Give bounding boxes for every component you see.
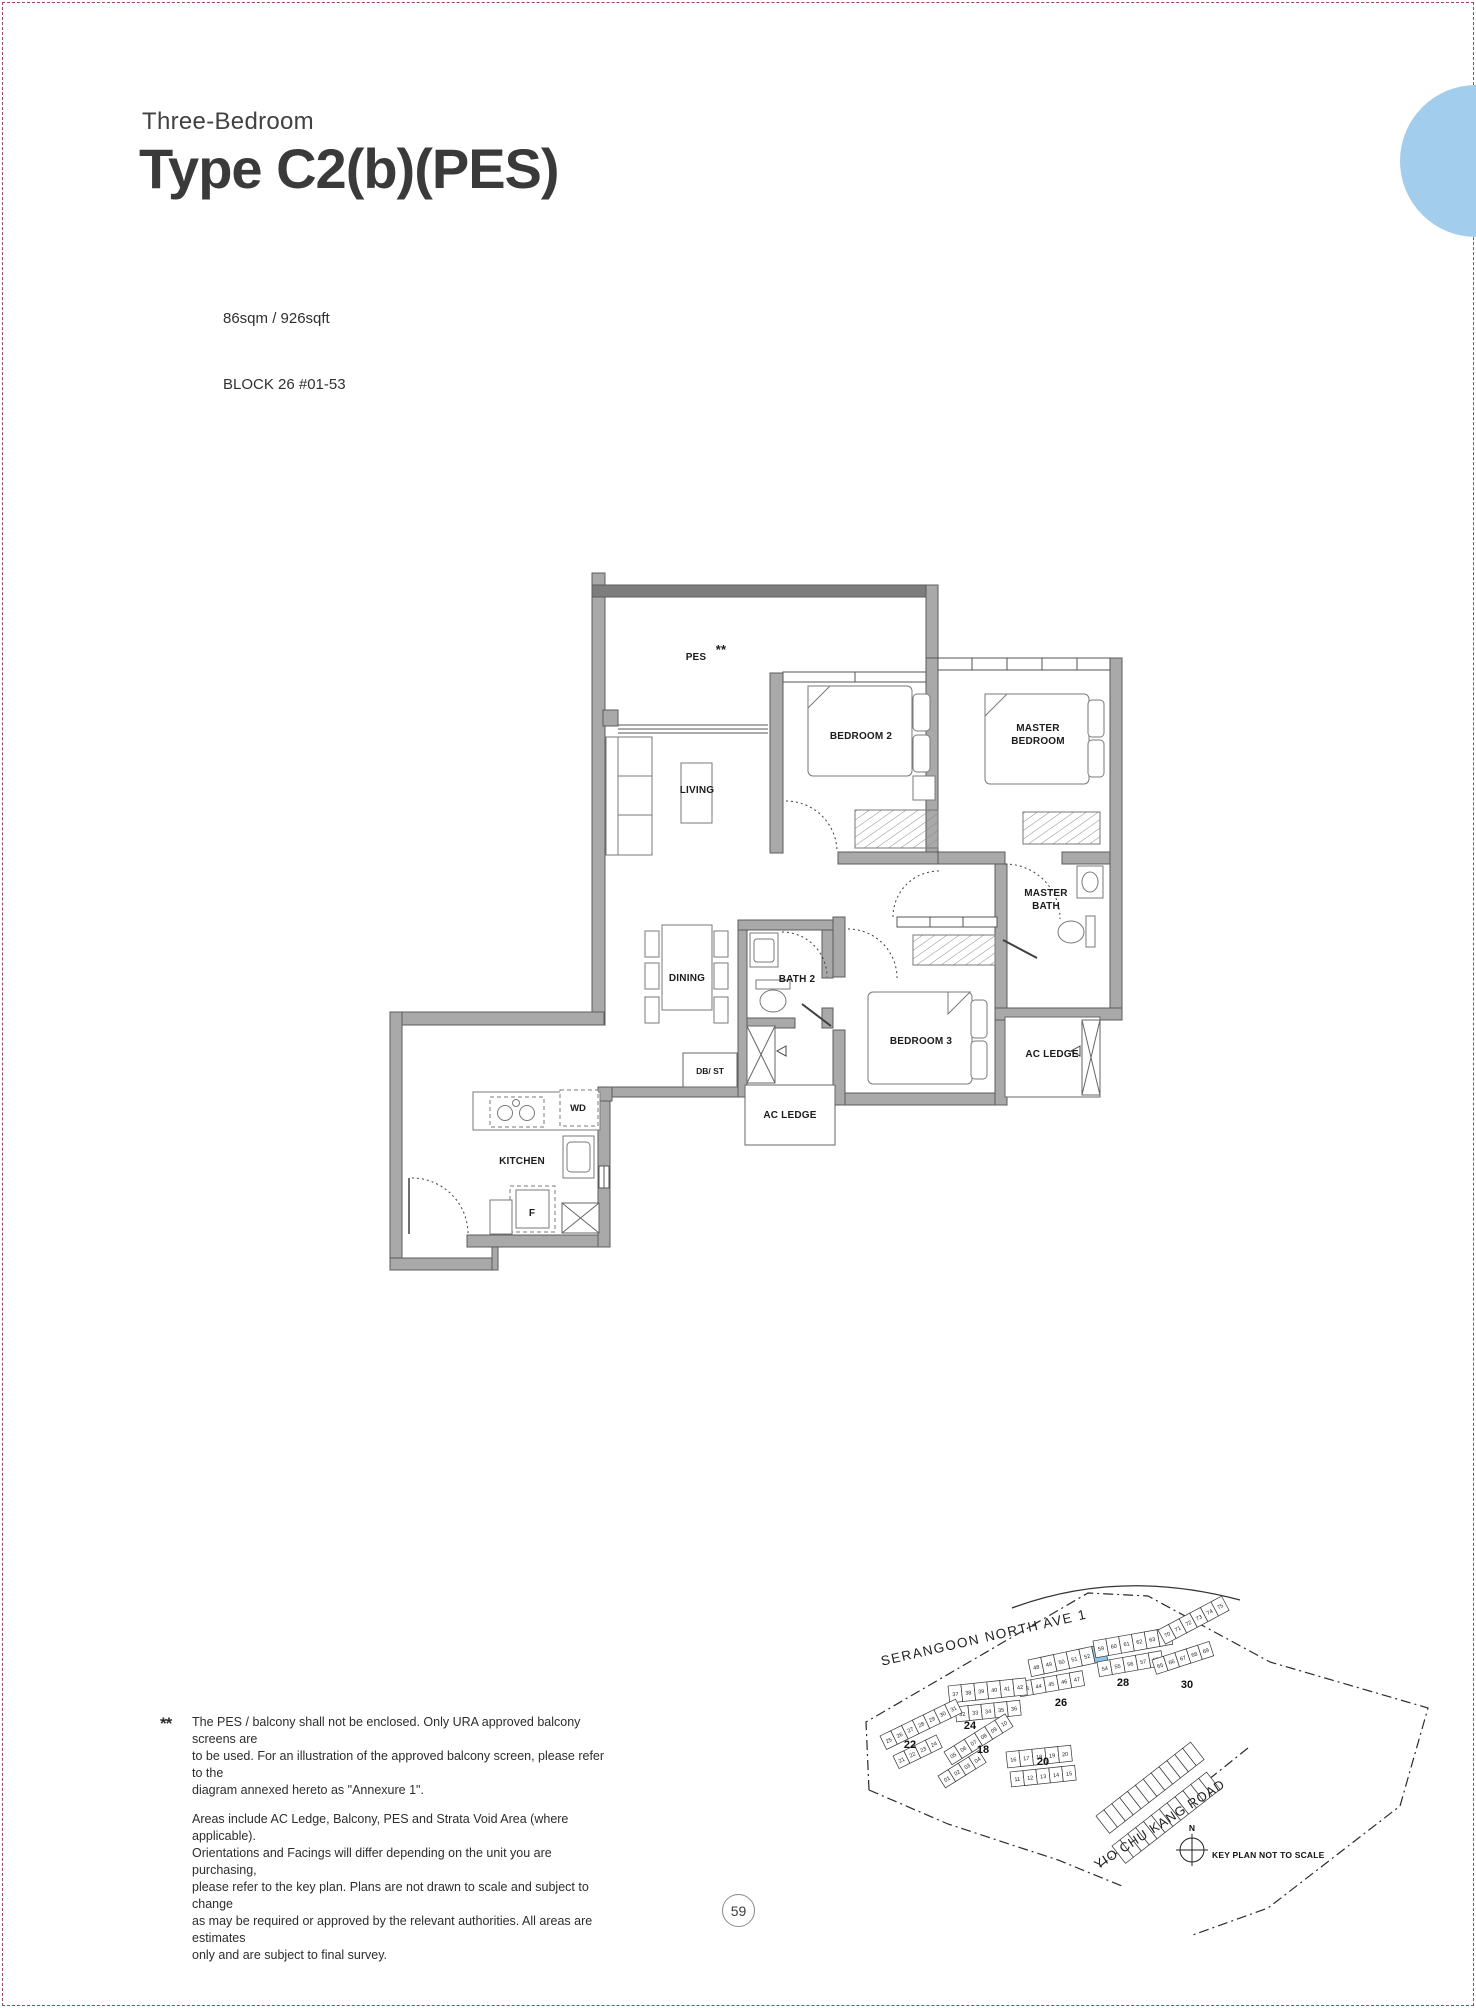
svg-text:39: 39 xyxy=(978,1689,985,1696)
footnote-paragraph-2: Areas include AC Ledge, Balcony, PES and… xyxy=(192,1811,605,1964)
north-compass-icon xyxy=(1176,1834,1208,1866)
label-ac-ledge-right: AC LEDGE xyxy=(1025,1049,1078,1060)
svg-text:57: 57 xyxy=(1140,1659,1147,1666)
svg-text:15: 15 xyxy=(1066,1771,1073,1778)
label-ac-ledge-bottom: AC LEDGE xyxy=(763,1110,816,1121)
svg-text:45: 45 xyxy=(1048,1681,1055,1688)
svg-text:12: 12 xyxy=(1027,1775,1034,1782)
block-label-18: 18 xyxy=(977,1744,989,1756)
label-wd: WD xyxy=(570,1103,586,1114)
unit-area: 86sqm / 926sqft xyxy=(223,310,330,327)
block-label-22: 22 xyxy=(904,1739,916,1751)
svg-text:33: 33 xyxy=(972,1710,979,1717)
label-fridge: F xyxy=(529,1208,535,1219)
block-label-26: 26 xyxy=(1055,1697,1067,1709)
svg-text:16: 16 xyxy=(1010,1757,1017,1764)
svg-text:34: 34 xyxy=(985,1709,992,1716)
svg-text:62: 62 xyxy=(1136,1639,1143,1646)
unit-block: BLOCK 26 #01-53 xyxy=(223,376,346,393)
svg-text:17: 17 xyxy=(1023,1756,1030,1763)
label-db-st: DB/ ST xyxy=(696,1066,725,1076)
floor-plan: PES ** LIVING DINING BATH 2 BEDROOM 2 MA… xyxy=(380,555,1140,1285)
svg-text:42: 42 xyxy=(1017,1685,1024,1692)
block-label-20: 20 xyxy=(1037,1756,1049,1768)
block-label-28: 28 xyxy=(1117,1677,1129,1689)
brochure-page: Three-Bedroom Type C2(b)(PES) 86sqm / 92… xyxy=(0,0,1476,2008)
label-master-bath-1: MASTER xyxy=(1024,888,1068,899)
unit-category: Three-Bedroom xyxy=(142,108,314,136)
label-dining: DINING xyxy=(669,973,705,984)
key-plan: 4849505152534344454647596061626364545556… xyxy=(860,1570,1440,1940)
label-kitchen: KITCHEN xyxy=(499,1156,545,1167)
svg-text:59: 59 xyxy=(1098,1646,1105,1653)
label-master-bedroom-2: BEDROOM xyxy=(1011,736,1065,747)
label-pes: PES xyxy=(686,652,707,663)
svg-text:13: 13 xyxy=(1040,1774,1047,1781)
svg-text:36: 36 xyxy=(1011,1706,1018,1713)
svg-text:35: 35 xyxy=(998,1708,1005,1715)
footnote-marker: ** xyxy=(160,1715,171,1732)
svg-text:48: 48 xyxy=(1033,1665,1040,1672)
label-living: LIVING xyxy=(680,785,715,796)
svg-text:20: 20 xyxy=(1062,1752,1069,1759)
svg-text:38: 38 xyxy=(965,1690,972,1697)
svg-text:46: 46 xyxy=(1061,1679,1068,1686)
svg-text:54: 54 xyxy=(1101,1666,1108,1673)
svg-text:41: 41 xyxy=(1004,1686,1011,1693)
svg-text:47: 47 xyxy=(1074,1677,1081,1684)
svg-text:40: 40 xyxy=(991,1688,998,1695)
block-label-24: 24 xyxy=(964,1720,977,1732)
svg-text:60: 60 xyxy=(1110,1644,1117,1651)
plan-service-areas xyxy=(562,1017,1100,1233)
svg-text:19: 19 xyxy=(1049,1753,1056,1760)
svg-text:37: 37 xyxy=(952,1692,959,1699)
page-title: Type C2(b)(PES) xyxy=(139,136,559,201)
block-label-30: 30 xyxy=(1181,1679,1193,1691)
pes-note-asterisks: ** xyxy=(716,642,727,657)
svg-text:56: 56 xyxy=(1127,1661,1134,1668)
svg-text:49: 49 xyxy=(1045,1662,1052,1669)
label-bedroom2: BEDROOM 2 xyxy=(830,731,893,742)
page-number-badge: 59 xyxy=(722,1894,755,1927)
svg-text:52: 52 xyxy=(1084,1654,1091,1661)
decorative-blue-circle xyxy=(1400,85,1476,237)
keyplan-buildings: 4849505152534344454647596061626364545556… xyxy=(880,1596,1229,1863)
label-master-bath-2: BATH xyxy=(1032,901,1060,912)
label-bath2: BATH 2 xyxy=(779,974,816,985)
svg-text:44: 44 xyxy=(1035,1684,1042,1691)
label-bedroom3: BEDROOM 3 xyxy=(890,1036,953,1047)
page-number: 59 xyxy=(731,1903,747,1919)
svg-text:51: 51 xyxy=(1071,1656,1078,1663)
svg-text:11: 11 xyxy=(1014,1777,1020,1784)
north-label: N xyxy=(1189,1823,1195,1833)
footnote-paragraph-1: The PES / balcony shall not be enclosed.… xyxy=(192,1714,605,1799)
svg-text:14: 14 xyxy=(1053,1773,1060,1780)
keyplan-note: KEY PLAN NOT TO SCALE xyxy=(1212,1850,1325,1860)
plan-furniture xyxy=(473,686,1104,1234)
svg-text:50: 50 xyxy=(1058,1659,1065,1666)
footnotes: ** The PES / balcony shall not be enclos… xyxy=(160,1714,605,1964)
svg-text:63: 63 xyxy=(1149,1637,1156,1644)
label-master-bedroom-1: MASTER xyxy=(1016,723,1060,734)
svg-text:55: 55 xyxy=(1114,1664,1121,1671)
svg-text:61: 61 xyxy=(1123,1641,1130,1648)
